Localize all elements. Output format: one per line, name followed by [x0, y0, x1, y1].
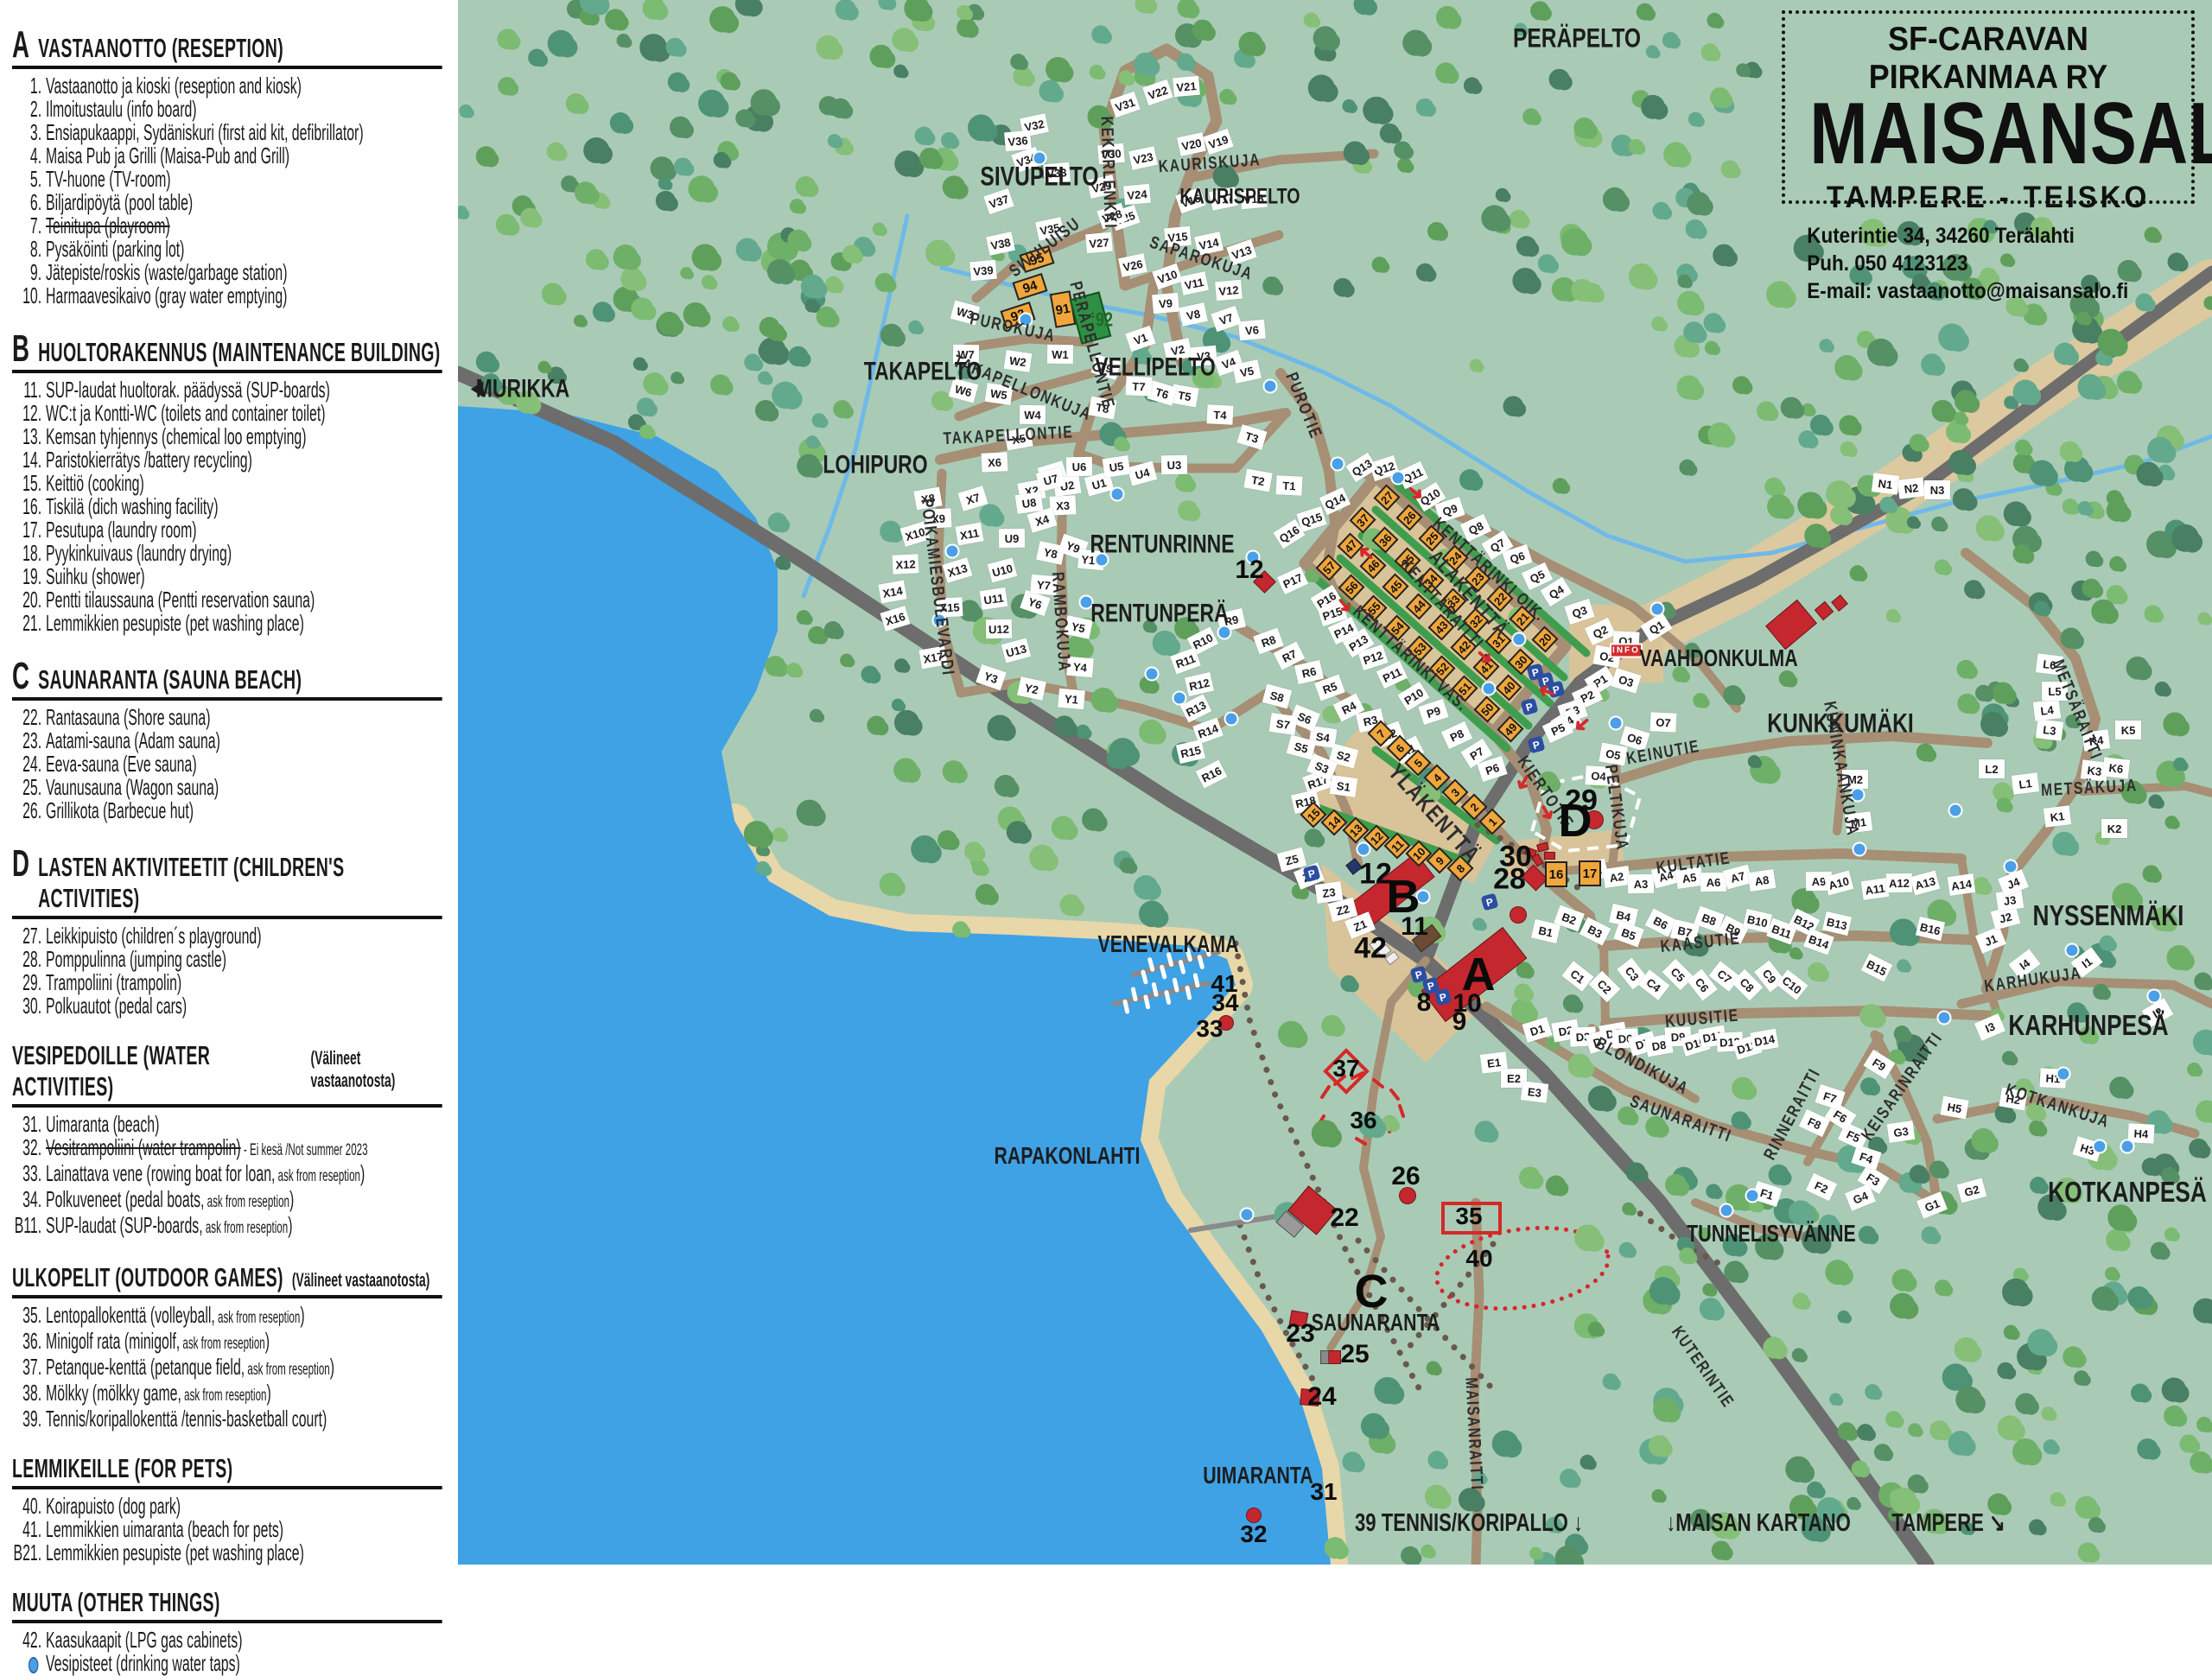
building-letter-A: A: [1462, 948, 1496, 1001]
pitch-O7: O7: [1649, 712, 1676, 733]
legend-item-text: Polkuveneet (pedal boats, ask from resep…: [46, 1188, 294, 1214]
legend-item-number: 24.: [12, 752, 46, 776]
building-letter-B: B: [1387, 870, 1421, 924]
legend-item-number: 9.: [12, 261, 46, 284]
legend-item: 19.Suihku (shower): [12, 565, 444, 588]
area-label: LOHIPURO: [823, 450, 927, 479]
legend-item: 13.Kemsan tyhjennys (chemical loo emptyi…: [12, 425, 444, 448]
legend-section-header: MUUTA (OTHER THINGS): [12, 1587, 442, 1623]
legend-item-text: Keittiö (cooking): [46, 472, 144, 495]
address-line: Kuterintie 34, 34260 Terälahti: [1785, 222, 2151, 250]
water-tap-icon: [2120, 1140, 2135, 1154]
pitch-V21: V21: [1173, 76, 1200, 98]
area-label: ↓MAISAN KARTANO: [1666, 1509, 1851, 1538]
legend-section-letter: A: [12, 26, 29, 64]
water-tap-icon: [1719, 1203, 1734, 1218]
legend-item: 31.Uimaranta (beach): [12, 1113, 444, 1136]
pitch-A6: A6: [1700, 873, 1726, 892]
legend-item-number: 15.: [12, 472, 46, 495]
area-label: VENEVALKAMA: [1097, 930, 1238, 959]
legend-item-text: Suihku (shower): [46, 565, 145, 588]
legend-item-number: 39.: [12, 1407, 46, 1431]
legend-item-text: Lainattava vene (rowing boat for loan, a…: [46, 1162, 365, 1188]
legend-section-letter: D: [12, 845, 29, 883]
area-label: KOTKANPESÄ: [2048, 1176, 2207, 1209]
facility-marker-37: 37: [1332, 1055, 1359, 1082]
pitch-K6: K6: [2102, 757, 2130, 778]
legend-item-number: 21.: [12, 612, 46, 635]
legend-item-text: Tennis/koripallokenttä /tennis-basketbal…: [46, 1407, 327, 1431]
water-tap-icon: [2065, 943, 2080, 958]
area-label: UIMARANTA: [1203, 1462, 1313, 1490]
legend-item-number: 5.: [12, 168, 46, 191]
water-tap-icon: [1853, 842, 1867, 857]
pitch-W1: W1: [1047, 345, 1073, 365]
legend-section: VESIPEDOILLE (WATER ACTIVITIES)(Välineet…: [12, 1040, 449, 1240]
legend-item-number: 32.: [12, 1136, 46, 1162]
legend-item: 40.Koirapuisto (dog park): [12, 1495, 444, 1518]
legend-item-text: SUP-laudat (SUP-boards, ask from resepti…: [46, 1214, 292, 1240]
legend-item-text: Eeva-sauna (Eve sauna): [46, 752, 197, 776]
legend-item-number: 12.: [12, 402, 46, 425]
legend-item-number: 20.: [12, 588, 46, 612]
legend-item: 28.Pomppulinna (jumping castle): [12, 948, 444, 971]
facility-marker-40: 40: [1465, 1245, 1492, 1273]
legend-item-text: Grillikota (Barbecue hut): [46, 799, 194, 822]
phone-line: Puh. 050 4123123: [1785, 250, 2151, 277]
pitch-V12: V12: [1215, 280, 1243, 302]
area-label: VAAHDONKULMA: [1639, 644, 1797, 673]
legend-item-text: Teinitupa (playroom): [46, 214, 170, 238]
orange-pitch-16: 16: [1545, 861, 1567, 887]
area-label: KARHUNPESÄ: [2008, 1009, 2168, 1043]
water-tap-icon: [1948, 803, 1963, 818]
legend-item-number: 18.: [12, 542, 46, 565]
legend-item: 7.Teinitupa (playroom): [12, 214, 444, 238]
legend-item-text: Pesutupa (laundry room): [46, 518, 197, 542]
legend-item-text: Trampoliini (trampolin): [46, 971, 181, 994]
legend-section: BHUOLTORAKENNUS (MAINTENANCE BUILDING)11…: [12, 330, 449, 635]
legend-item: 36.Minigolf rata (minigolf, ask from res…: [12, 1330, 444, 1355]
legend-item: 8.Pysäköinti (parking lot): [12, 238, 444, 261]
legend-item-text: Vesipisteet (drinking water taps): [46, 1652, 240, 1675]
legend-item-text: Paristokierrätys /battery recycling): [46, 448, 252, 472]
legend-item-number: 10.: [12, 284, 46, 308]
legend-item-number: 38.: [12, 1381, 46, 1407]
legend-item-number: B11.: [12, 1214, 46, 1240]
building-letter-D: D: [1559, 794, 1592, 848]
legend-section-title: ULKOPELIT (OUTDOOR GAMES): [12, 1262, 283, 1293]
legend-item-text: Leikkipuisto (children´s playground): [46, 924, 261, 948]
legend-item: 2.Ilmoitustaulu (info board): [12, 98, 444, 121]
legend-item: 11.SUP-laudat huoltorak. päädyssä (SUP-b…: [12, 378, 444, 402]
legend-section-title: HUOLTORAKENNUS (MAINTENANCE BUILDING): [38, 337, 441, 368]
road-label: KEKERLENKKI: [1096, 116, 1120, 229]
legend-section-header: LEMMIKEILLE (FOR PETS): [12, 1453, 442, 1489]
legend-item: Vesipisteet (drinking water taps): [12, 1652, 444, 1675]
water-tap-icon: [1145, 667, 1160, 682]
pitch-L3: L3: [2036, 719, 2063, 740]
water-tap-icon: [1391, 471, 1406, 486]
area-label: TUNNELISYVÄNNE: [1687, 1220, 1855, 1248]
legend-item-number: 34.: [12, 1188, 46, 1214]
legend-section-header: VESIPEDOILLE (WATER ACTIVITIES)(Välineet…: [12, 1040, 442, 1108]
water-tap-icon: [1650, 602, 1665, 617]
facility-marker-8: 8: [1417, 988, 1432, 1018]
area-label: ◄: [467, 373, 487, 404]
pitch-A2: A2: [1603, 866, 1631, 888]
info-sign: INFO: [1610, 644, 1643, 658]
legend-item-text: Uimaranta (beach): [46, 1113, 159, 1136]
email-line: E-mail: vastaanotto@maisansalo.fi: [1785, 277, 2151, 305]
legend-section: DLASTEN AKTIVITEETIT (CHILDREN'S ACTIVIT…: [12, 845, 449, 1018]
water-tap-icon: [1331, 457, 1345, 472]
legend-section-title: LEMMIKEILLE (FOR PETS): [12, 1453, 232, 1484]
facility-marker-23: 23: [1286, 1319, 1314, 1349]
legend-item-number: 41.: [12, 1518, 46, 1541]
legend-item: 22.Rantasauna (Shore sauna): [12, 706, 444, 729]
pitch-T4: T4: [1206, 404, 1233, 425]
legend-section-suffix: (Välineet vastaanotosta): [311, 1047, 442, 1092]
pitch-Y1: Y1: [1058, 689, 1085, 710]
water-tap-icon: [2093, 1140, 2107, 1154]
water-tap-icon: [2147, 989, 2162, 1004]
legend-item-text: WC:t ja Kontti-WC (toilets and container…: [46, 402, 325, 425]
legend-item-number: 14.: [12, 448, 46, 472]
site-name: MAISANSALO: [1809, 93, 2167, 176]
pitch-N3: N3: [1924, 480, 1950, 499]
legend-item-number: 27.: [12, 924, 46, 948]
pitch-S7: S7: [1269, 713, 1298, 735]
legend-item-number: 29.: [12, 971, 46, 994]
legend-item: 25.Vaunusauna (Wagon sauna): [12, 776, 444, 799]
legend-item-text: Kemsan tyhjennys (chemical loo emptying): [46, 425, 306, 448]
legend-item: 16.Tiskilä (dich washing facility): [12, 495, 444, 518]
legend-item-number: 17.: [12, 518, 46, 542]
legend-item: 38.Mölkky (mölkky game, ask from resepti…: [12, 1381, 444, 1407]
legend-item-number: B21.: [12, 1541, 46, 1565]
water-tap-icon: [1224, 712, 1239, 727]
facility-marker-25: 25: [1340, 1340, 1369, 1369]
legend-item: 24.Eeva-sauna (Eve sauna): [12, 752, 444, 776]
legend-item: 37.Petanque-kenttä (petanque field, ask …: [12, 1355, 444, 1381]
legend-item-text: Petanque-kenttä (petanque field, ask fro…: [46, 1355, 334, 1381]
facility-marker-35: 35: [1455, 1203, 1482, 1230]
orange-pitch-17: 17: [1579, 860, 1601, 886]
legend-item-text: Harmaavesikaivo (gray water emptying): [46, 284, 287, 308]
legend-item-number: 16.: [12, 495, 46, 518]
legend-item-number: 6.: [12, 191, 46, 214]
facility-marker-31: 31: [1310, 1478, 1337, 1506]
legend-item-number: 42.: [12, 1628, 46, 1652]
map-canvas: SF-CARAVAN PIRKANMAA RY MAISANSALO TAMPE…: [458, 0, 2212, 1565]
legend-item-text: Lemmikkien uimaranta (beach for pets): [46, 1518, 283, 1541]
facility-marker-41: 41: [1211, 970, 1237, 998]
legend-item-number: 1.: [12, 74, 46, 98]
facility-marker-42: 42: [1354, 932, 1387, 966]
legend-item: 20.Pentti tilaussauna (Pentti reservatio…: [12, 588, 444, 612]
legend-item-number: 8.: [12, 238, 46, 261]
legend-section-title: VASTAANOTTO (RESEPTION): [38, 33, 283, 64]
legend-item: 32.Vesitrampoliini (water trampolin) - E…: [12, 1136, 444, 1162]
legend-item: 29.Trampoliini (trampolin): [12, 971, 444, 994]
legend-item-number: 25.: [12, 776, 46, 799]
water-tap-icon: [1240, 1208, 1255, 1222]
area-label: VELLIPELTO: [1095, 352, 1215, 382]
pitch-A14: A14: [1948, 873, 1976, 896]
pitch-S1: S1: [1330, 775, 1358, 797]
pitch-L4: L4: [2033, 699, 2061, 721]
legend-section-title: MUUTA (OTHER THINGS): [12, 1587, 220, 1618]
area-label: SIVUPELTO: [980, 162, 1098, 193]
legend-item: 34.Polkuveneet (pedal boats, ask from re…: [12, 1188, 444, 1214]
legend-item-number: 22.: [12, 706, 46, 729]
pitch-V6: V6: [1238, 320, 1266, 341]
legend-item: 10.Harmaavesikaivo (gray water emptying): [12, 284, 444, 308]
facility-dot: [1510, 906, 1527, 924]
legend-section-header: AVASTAANOTTO (RESEPTION): [12, 26, 442, 69]
legend-section: LEMMIKEILLE (FOR PETS)40.Koirapuisto (do…: [12, 1453, 449, 1565]
legend-section-letter: C: [12, 657, 29, 695]
legend-item-text: Kaasukaapit (LPG gas cabinets): [46, 1628, 242, 1652]
legend-item-text: Pyykinkuivaus (laundry drying): [46, 542, 232, 565]
pitch-L1: L1: [2012, 772, 2039, 794]
pitch-U11: U11: [980, 587, 1008, 610]
legend-item-text: Vaunusauna (Wagon sauna): [46, 776, 219, 799]
pitch-K2: K2: [2101, 819, 2127, 838]
legend-item-number: 4.: [12, 144, 46, 168]
legend-section-title: VESIPEDOILLE (WATER ACTIVITIES): [12, 1040, 302, 1102]
legend-item-text: Ilmoitustaulu (info board): [46, 98, 197, 121]
legend-item: 18.Pyykinkuivaus (laundry drying): [12, 542, 444, 565]
legend-item-text: Lemmikkien pesupiste (pet washing place): [46, 1541, 304, 1565]
legend-item-text: Minigolf rata (minigolf, ask from resept…: [46, 1330, 270, 1355]
legend-item-text: Mölkky (mölkky game, ask from reseption): [46, 1381, 271, 1407]
legend-item: 4.Maisa Pub ja Grilli (Maisa-Pub and Gri…: [12, 144, 444, 168]
legend-item-text: Lentopallokenttä (volleyball, ask from r…: [46, 1304, 305, 1330]
water-tap-icon: [29, 1657, 39, 1673]
legend-item: 3.Ensiapukaappi, Sydäniskuri (first aid …: [12, 121, 444, 144]
water-tap-icon: [1609, 716, 1624, 731]
legend-item: 27.Leikkipuisto (children´s playground): [12, 924, 444, 948]
legend-item: 26.Grillikota (Barbecue hut): [12, 799, 444, 822]
legend-item-text: Pomppulinna (jumping castle): [46, 948, 226, 971]
legend-item-text: Pentti tilaussauna (Pentti reservation s…: [46, 588, 315, 612]
water-tap-icon: [945, 544, 960, 559]
legend-item-number: 26.: [12, 799, 46, 822]
area-label: RENTUNPERÄ: [1090, 599, 1228, 628]
facility-marker-12: 12: [1235, 555, 1263, 585]
legend-item-text: Koirapuisto (dog park): [46, 1495, 181, 1518]
area-label: TAMPERE ↘: [1891, 1509, 2005, 1538]
water-tap-icon: [1745, 1189, 1760, 1203]
pitch-X6: X6: [981, 452, 1007, 473]
legend-item-text: Rantasauna (Shore sauna): [46, 706, 210, 729]
pitch-A12: A12: [1886, 873, 1912, 893]
area-label: 39 TENNIS/KORIPALLO ↓: [1355, 1509, 1583, 1538]
facility-marker-36: 36: [1350, 1107, 1376, 1134]
legend-item-text: Vastaanotto ja kioski (reseption and kio…: [46, 74, 302, 98]
legend-item-text: SUP-laudat huoltorak. päädyssä (SUP-boar…: [46, 378, 330, 402]
area-label: RAPAKONLAHTI: [995, 1142, 1141, 1171]
legend-section: MUUTA (OTHER THINGS)42.Kaasukaapit (LPG …: [12, 1587, 449, 1675]
pitch-L2: L2: [1979, 759, 2005, 778]
legend-item-text: TV-huone (TV-room): [46, 168, 171, 191]
legend-item-number: 19.: [12, 565, 46, 588]
water-tap-icon: [1937, 1011, 1952, 1025]
water-tap-icon: [1357, 842, 1371, 857]
legend-item: B11.SUP-laudat (SUP-boards, ask from res…: [12, 1214, 444, 1240]
pitch-K5: K5: [2115, 721, 2141, 740]
legend-item-number: 36.: [12, 1330, 46, 1355]
legend-panel: AVASTAANOTTO (RESEPTION)1.Vastaanotto ja…: [0, 0, 458, 1565]
area-label: RENTUNRINNE: [1090, 530, 1234, 559]
facility-marker-26: 26: [1391, 1162, 1420, 1191]
pitch-T1: T1: [1275, 475, 1302, 496]
facility-marker-22: 22: [1330, 1203, 1358, 1233]
facility-marker-24: 24: [1307, 1382, 1336, 1412]
pitch-U6: U6: [1066, 457, 1092, 477]
legend-item: 41.Lemmikkien uimaranta (beach for pets): [12, 1518, 444, 1541]
water-tap-icon: [1173, 691, 1187, 706]
legend-item-number: 35.: [12, 1304, 46, 1330]
legend-item-number: 3.: [12, 121, 46, 144]
pitch-N2: N2: [1897, 477, 1925, 498]
legend-item-number: 7.: [12, 214, 46, 238]
legend-item-number: 28.: [12, 948, 46, 971]
legend-item: 12.WC:t ja Kontti-WC (toilets and contai…: [12, 402, 444, 425]
area-label: MURIKKA: [476, 374, 569, 403]
legend-item-number: [12, 1652, 46, 1675]
legend-item: 5.TV-huone (TV-room): [12, 168, 444, 191]
legend-item: 1.Vastaanotto ja kioski (reseption and k…: [12, 74, 444, 98]
legend-item: 21.Lemmikkien pesupiste (pet washing pla…: [12, 612, 444, 635]
legend-item-text: Vesitrampoliini (water trampolin) - Ei k…: [46, 1136, 368, 1162]
legend-item: 9.Jätepiste/roskis (waste/garbage statio…: [12, 261, 444, 284]
legend-section: CSAUNARANTA (SAUNA BEACH)22.Rantasauna (…: [12, 657, 449, 822]
legend-item: 14.Paristokierrätys /battery recycling): [12, 448, 444, 472]
pitch-X12: X12: [892, 554, 918, 575]
area-label: PERÄPELTO: [1513, 23, 1641, 54]
building: [1320, 1350, 1329, 1364]
pitch-G3: G3: [1887, 1121, 1916, 1143]
pitch-U5: U5: [1103, 455, 1131, 478]
pitch-U3: U3: [1161, 455, 1187, 475]
legend-item-text: Polkuautot (pedal cars): [46, 994, 187, 1018]
legend-item-text: Biljardipöytä (pool table): [46, 191, 193, 214]
legend-item: 35.Lentopallokenttä (volleyball, ask fro…: [12, 1304, 444, 1330]
legend-section-header: ULKOPELIT (OUTDOOR GAMES)(Välineet vasta…: [12, 1262, 442, 1298]
legend-item-number: 23.: [12, 729, 46, 752]
pitch-U9: U9: [999, 529, 1025, 549]
legend-section-title: SAUNARANTA (SAUNA BEACH): [38, 664, 302, 695]
water-tap-icon: [2056, 1067, 2071, 1082]
building-letter-C: C: [1355, 1265, 1389, 1318]
pitch-W2: W2: [1004, 350, 1033, 372]
legend-item-text: Lemmikkien pesupiste (pet washing place): [46, 612, 304, 635]
legend-section: ULKOPELIT (OUTDOOR GAMES)(Välineet vasta…: [12, 1262, 449, 1431]
water-tap-icon: [1512, 632, 1527, 647]
legend-section: AVASTAANOTTO (RESEPTION)1.Vastaanotto ja…: [12, 26, 449, 308]
pitch-E3: E3: [1521, 1081, 1548, 1102]
legend-item-number: 13.: [12, 425, 46, 448]
pitch-A3: A3: [1628, 874, 1654, 894]
legend-item: 6.Biljardipöytä (pool table): [12, 191, 444, 214]
legend-item-text: Pysäköinti (parking lot): [46, 238, 184, 261]
title-box: SF-CARAVAN PIRKANMAA RY MAISANSALO TAMPE…: [1782, 10, 2195, 204]
legend-section-header: CSAUNARANTA (SAUNA BEACH): [12, 657, 442, 701]
water-tap-icon: [1263, 379, 1278, 394]
facility-marker-33: 33: [1196, 1015, 1223, 1043]
legend-item: 33.Lainattava vene (rowing boat for loan…: [12, 1162, 444, 1188]
pitch-V9: V9: [1152, 293, 1179, 314]
pitch-W4: W4: [1020, 405, 1046, 425]
legend-item-number: 37.: [12, 1355, 46, 1381]
pitch-Z3: Z3: [1315, 881, 1344, 904]
legend-item-text: Maisa Pub ja Grilli (Maisa-Pub and Grill…: [46, 144, 289, 168]
facility-marker-32: 32: [1240, 1520, 1267, 1548]
pitch-V39: V39: [969, 260, 997, 282]
pitch-V27: V27: [1085, 232, 1113, 254]
legend-item: 30.Polkuautot (pedal cars): [12, 994, 444, 1018]
legend-item-number: 11.: [12, 378, 46, 402]
water-tap-icon: [1482, 682, 1497, 696]
legend-item-number: 33.: [12, 1162, 46, 1188]
legend-item: 42.Kaasukaapit (LPG gas cabinets): [12, 1628, 444, 1652]
legend-section-header: DLASTEN AKTIVITEETIT (CHILDREN'S ACTIVIT…: [12, 845, 442, 919]
pitch-U8: U8: [1015, 492, 1044, 514]
area-label: TAKAPELTO: [864, 357, 982, 386]
pitch-K1: K1: [2044, 805, 2071, 827]
legend-item: B21.Lemmikkien pesupiste (pet washing pl…: [12, 1541, 444, 1565]
pitch-A11: A11: [1861, 878, 1890, 900]
area-label: 92: [1096, 308, 1113, 331]
site-location: TAMPERE - TEISKO: [1796, 181, 2182, 215]
facility-marker-30: 30: [1499, 841, 1532, 874]
water-tap-icon: [1110, 487, 1125, 502]
pitch-V36: V36: [1004, 130, 1032, 152]
legend-item: 15.Keittiö (cooking): [12, 472, 444, 495]
legend-section-letter: B: [12, 330, 29, 368]
pitch-U12: U12: [986, 619, 1012, 639]
legend-item-number: 31.: [12, 1113, 46, 1136]
legend-item: 23.Aatami-sauna (Adam sauna): [12, 729, 444, 752]
legend-item-text: Tiskilä (dich washing facility): [46, 495, 218, 518]
building: [1544, 852, 1555, 860]
pitch-A8: A8: [1748, 869, 1777, 892]
area-label: KAURISPELTO: [1179, 184, 1300, 209]
legend-item-number: 40.: [12, 1495, 46, 1518]
legend-item-number: 2.: [12, 98, 46, 121]
campsite-map-page: AVASTAANOTTO (RESEPTION)1.Vastaanotto ja…: [0, 0, 2212, 1565]
water-tap-icon: [2004, 860, 2018, 874]
legend-section-suffix: (Välineet vastaanotosta): [292, 1269, 429, 1292]
legend-section-header: BHUOLTORAKENNUS (MAINTENANCE BUILDING): [12, 330, 442, 373]
legend-item-text: Jätepiste/roskis (waste/garbage station): [46, 261, 287, 284]
legend-item: 39.Tennis/koripallokenttä /tennis-basket…: [12, 1407, 444, 1431]
area-label: NYSSENMÄKI: [2033, 899, 2184, 933]
legend-item-text: Aatami-sauna (Adam sauna): [46, 729, 220, 752]
legend-item: 17.Pesutupa (laundry room): [12, 518, 444, 542]
pitch-N1: N1: [1872, 473, 1899, 494]
legend-section-title: LASTEN AKTIVITEETIT (CHILDREN'S ACTIVITI…: [38, 852, 442, 914]
legend-item-number: 30.: [12, 994, 46, 1018]
legend-item-text: Ensiapukaappi, Sydäniskuri (first aid ki…: [46, 121, 364, 144]
pitch-V24: V24: [1123, 184, 1151, 206]
